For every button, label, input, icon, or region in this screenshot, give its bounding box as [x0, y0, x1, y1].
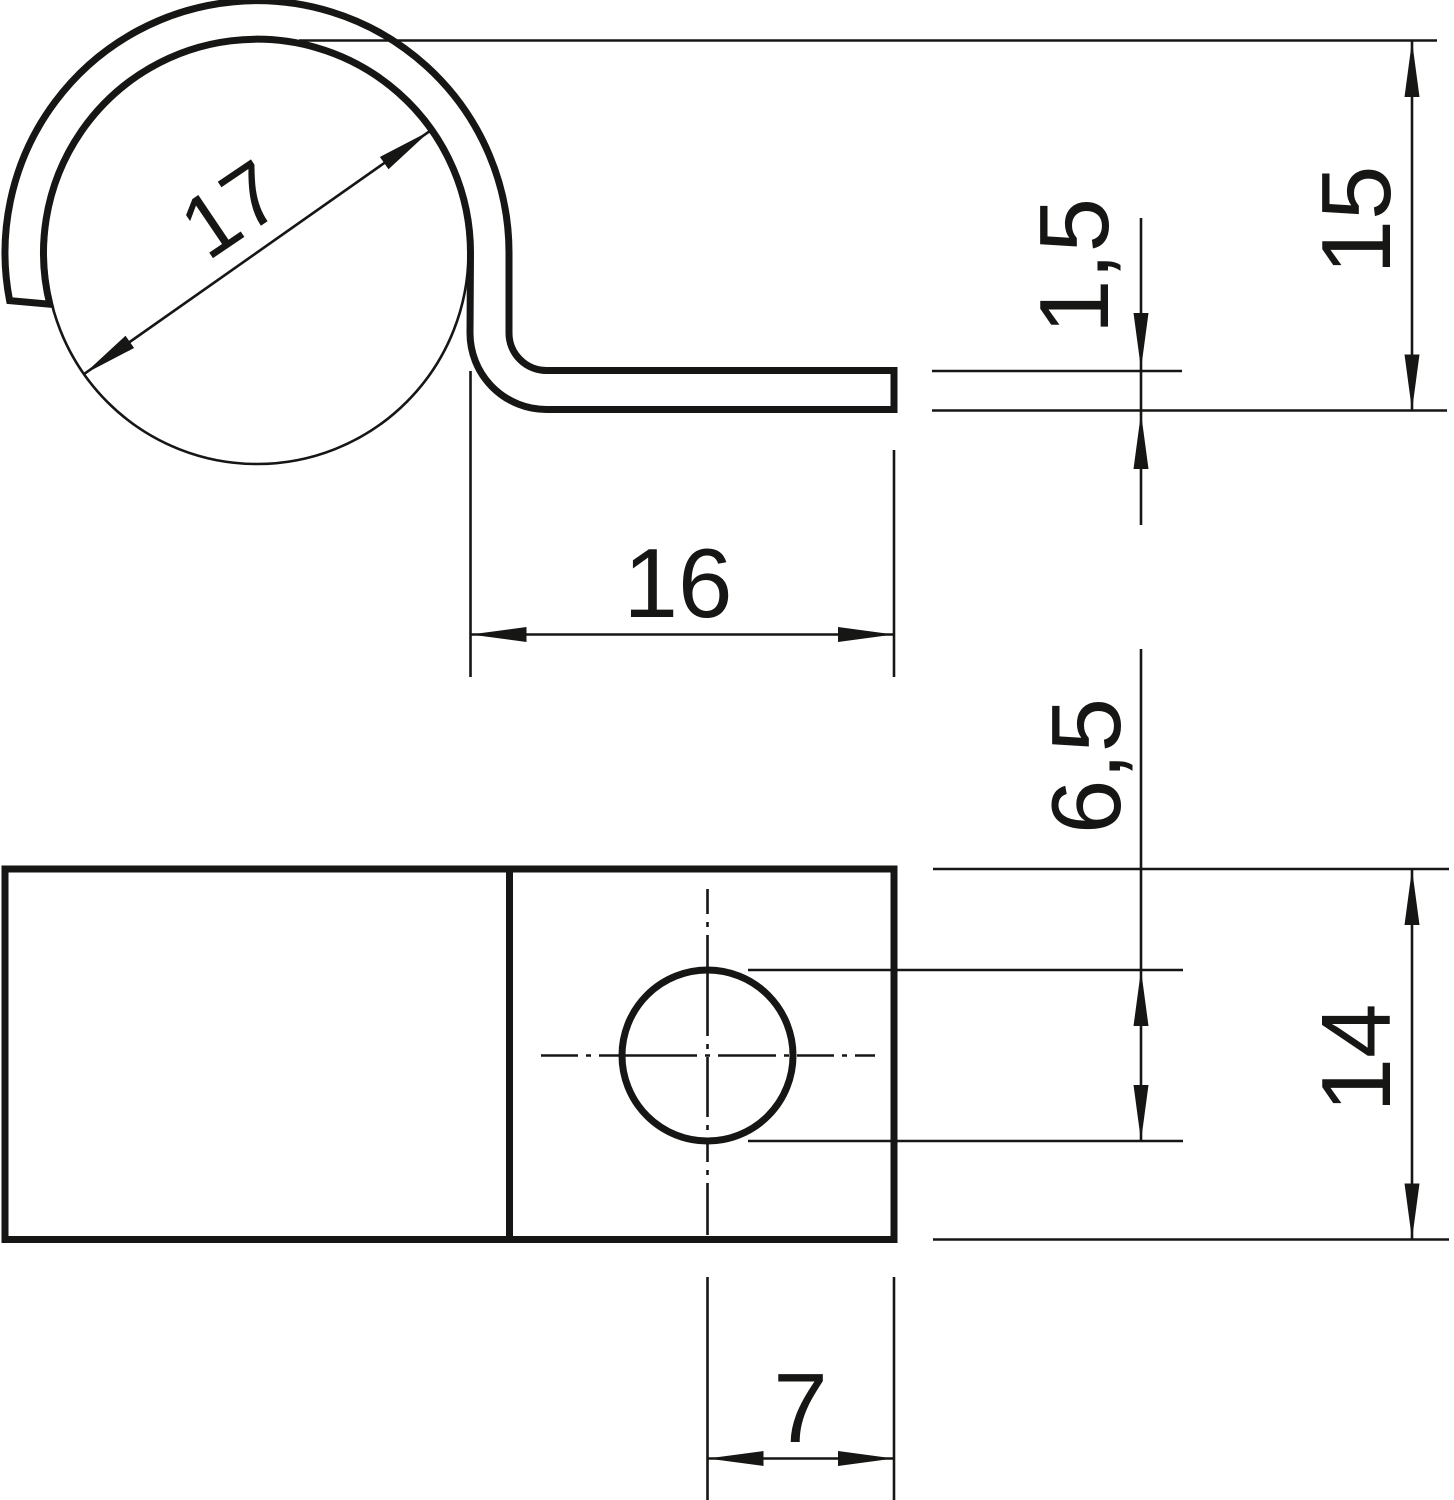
svg-text:6,5: 6,5	[1031, 698, 1141, 834]
svg-text:1,5: 1,5	[1019, 198, 1129, 334]
svg-text:7: 7	[773, 1353, 828, 1463]
svg-text:17: 17	[163, 141, 300, 278]
svg-text:14: 14	[1301, 1003, 1411, 1112]
svg-text:16: 16	[623, 528, 732, 638]
svg-text:15: 15	[1301, 165, 1411, 274]
